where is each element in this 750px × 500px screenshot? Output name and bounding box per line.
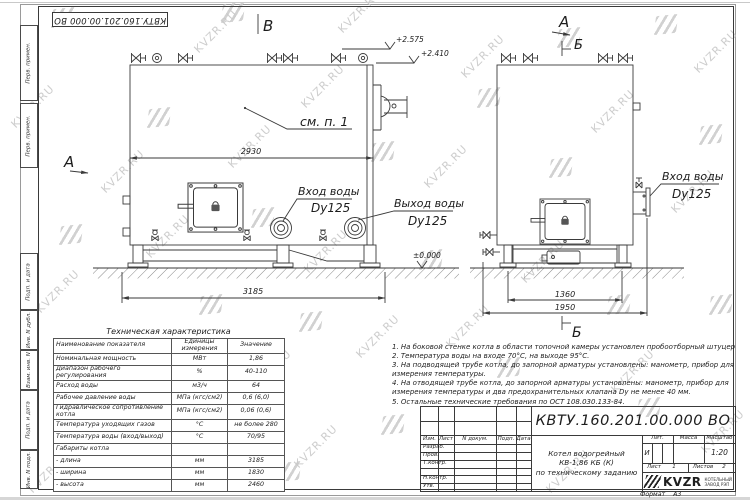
note-line: 3. На подводящей трубе котла, до запорно… xyxy=(392,361,736,370)
side-valve xyxy=(480,231,497,239)
dim-2930: 2930 xyxy=(241,147,261,156)
rev-col-ndokum: N докум. xyxy=(454,435,496,444)
view-a-label-right: А xyxy=(558,13,569,31)
top-valve xyxy=(132,53,146,63)
support-frame-side xyxy=(128,245,380,267)
tech-table-title: Техническая характеристика xyxy=(53,327,284,336)
dim-1950: 1950 xyxy=(555,303,575,312)
product-title: Котел водогрейный КВ-1,86 КБ (К) по техн… xyxy=(531,435,642,491)
technical-notes: 1. На боковой стенке котла в области топ… xyxy=(392,343,736,407)
margin-box-vzam-inv: Взам. инв. N xyxy=(20,350,38,390)
view-a-label-left: А xyxy=(63,153,74,171)
inlet-label: Вход воды xyxy=(298,185,360,198)
tech-row: Габариты котла xyxy=(54,443,285,455)
kvzr-logo-subtitle: КОТЕЛЬНЫЙ ЗАВОД РЭП xyxy=(705,477,732,487)
top-valve xyxy=(179,53,193,63)
lit-value: И xyxy=(642,443,652,463)
section-b-bottom-label: Б xyxy=(572,325,582,341)
tech-row: - высотамм2460 xyxy=(54,479,285,491)
outlet-dn: Dy125 xyxy=(408,214,447,228)
furnace-door-side xyxy=(178,183,243,232)
margin-box-perv-primen-1: Перв. примен. xyxy=(20,25,38,101)
note-line: измерения температуры. xyxy=(392,370,736,379)
kvzr-logo-text: KVZR xyxy=(663,475,702,489)
tech-row: Рабочее давление водыМПа (кгс/см2)0,6 (6… xyxy=(54,392,285,404)
title-block: Изм. Лист N докум. Подп. Дата Разраб. Пр… xyxy=(420,406,736,492)
sheet-label: Лист xyxy=(643,463,665,472)
rev-col-izm: Изм. xyxy=(421,435,438,444)
sheets-label: Листов xyxy=(689,463,717,472)
dim-1360: 1360 xyxy=(555,290,575,299)
tech-row: Диапазон рабочего регулирования%40-110 xyxy=(54,365,285,380)
tech-row: - длинамм3185 xyxy=(54,455,285,467)
lit-header: Лит. xyxy=(642,435,673,443)
top-valve xyxy=(502,53,516,63)
side-valve xyxy=(483,248,500,256)
end-view: А Б 1360 1950 xyxy=(470,13,724,341)
elevation-mark-top xyxy=(385,42,395,49)
water-outlet-flange xyxy=(345,218,366,239)
margin-box-podp-data-1: Подп. и дата xyxy=(20,253,38,310)
tech-table: Наименование показателя Единицы измерени… xyxy=(53,338,285,492)
doc-number-rotated: КВТУ.160.201.00.000 ВО xyxy=(54,15,166,25)
note-line: 4. На отводящей трубе котла, до запорной… xyxy=(392,379,736,388)
boiler-body-end xyxy=(497,65,633,245)
outlet-label: Выход воды xyxy=(394,197,464,210)
tech-row: Температура уходящих газов°Сне более 280 xyxy=(54,419,285,431)
tech-row: Номинальная мощностьМВт1,86 xyxy=(54,353,285,365)
tech-col-units: Единицы измерения xyxy=(172,339,228,354)
margin-box-inv-dubl: Инв. N дубл. xyxy=(20,310,38,350)
inlet-right-label: Вход воды xyxy=(662,170,724,183)
drain-valve xyxy=(320,230,326,241)
top-valve xyxy=(524,53,538,63)
furnace-door-end xyxy=(531,199,590,244)
tech-row: Температура воды (вход/выход)°С70/95 xyxy=(54,431,285,443)
doc-number-top-box: КВТУ.160.201.00.000 ВО xyxy=(52,12,168,27)
margin-box-podp-data-2: Подп. и дата xyxy=(20,390,38,450)
doc-number: КВТУ.160.201.00.000 ВО xyxy=(531,407,735,435)
ground-hatch-left xyxy=(93,269,459,279)
inlet-right-dn: Dy125 xyxy=(672,187,711,201)
water-inlet-flange xyxy=(271,218,292,239)
format-note: Формат А3 xyxy=(640,491,681,498)
elevation-top-value: +2.575 xyxy=(396,35,424,44)
company-logo: KVZR КОТЕЛЬНЫЙ ЗАВОД РЭП xyxy=(642,472,735,491)
tech-header-row: Наименование показателя Единицы измерени… xyxy=(54,339,285,354)
note-line: измерения температуры и два предохраните… xyxy=(392,388,736,397)
role-nkontr: Н.контр. xyxy=(421,475,456,483)
rev-col-data: Дата xyxy=(516,435,531,444)
view-a-arrow-left xyxy=(70,171,88,173)
sheets-value: 2 xyxy=(717,463,731,472)
scale-header: Масштаб xyxy=(704,435,735,443)
role-razrab: Разраб. xyxy=(421,444,456,452)
rev-col-podp: Подп. xyxy=(496,435,516,444)
margin-box-perv-primen-2: Перв. примен. xyxy=(20,103,38,168)
tech-col-value: Значение xyxy=(228,339,285,354)
tech-row: Расход водым3/ч64 xyxy=(54,380,285,392)
section-b-top-label: Б xyxy=(574,38,583,53)
top-valve xyxy=(332,53,346,63)
inlet-dn: Dy125 xyxy=(311,201,350,215)
elevation-zero-value: ±0.000 xyxy=(413,251,441,260)
view-a-arrow-right xyxy=(552,32,570,35)
elevation-mid-value: +2.410 xyxy=(421,49,449,58)
role-prov: Пров. xyxy=(421,452,456,460)
rev-col-list: Лист xyxy=(438,435,454,444)
mass-header: Масса xyxy=(673,435,704,443)
elevation-mark-zero xyxy=(417,261,427,268)
ground-hatch-right xyxy=(470,269,684,279)
side-view: В +2.575 +2.410 см. п. 1 2930 xyxy=(63,14,464,303)
drain-valve xyxy=(244,230,250,241)
tech-characteristics: Техническая характеристика Наименование … xyxy=(53,327,284,492)
flue-outlet xyxy=(373,85,407,130)
top-valve xyxy=(619,53,633,63)
top-valve xyxy=(268,53,282,63)
elevation-mark-mid xyxy=(409,56,419,63)
see-note-label: см. п. 1 xyxy=(300,114,348,129)
margin-box-inv-podl: Инв. N подл. xyxy=(20,450,38,489)
note-line: 1. На боковой стенке котла в области топ… xyxy=(392,343,736,352)
support-frame-end xyxy=(500,245,631,267)
role-utv: Утв. xyxy=(421,483,456,491)
scale-value: 1:20 xyxy=(704,443,735,463)
note-line: 2. Температура воды на входе 70°С, на вы… xyxy=(392,352,736,361)
inlet-nozzle-end xyxy=(633,178,650,216)
tech-row: Гидравлическое сопротивление котлаМПа (к… xyxy=(54,404,285,419)
kvzr-coil-icon xyxy=(644,475,662,488)
top-valve xyxy=(284,53,298,63)
dim-3185: 3185 xyxy=(243,287,263,296)
drawing-sheet: { "doc": { "number": "КВТУ.160.201.00.00… xyxy=(0,0,750,500)
role-tkontr: Т.контр. xyxy=(421,460,456,468)
tech-col-name: Наименование показателя xyxy=(54,339,172,354)
sheet-value: 1 xyxy=(667,463,681,472)
tech-row: - ширинамм1830 xyxy=(54,467,285,479)
top-valve xyxy=(599,53,613,63)
drain-valve xyxy=(152,230,158,241)
section-b-label: В xyxy=(263,17,273,35)
